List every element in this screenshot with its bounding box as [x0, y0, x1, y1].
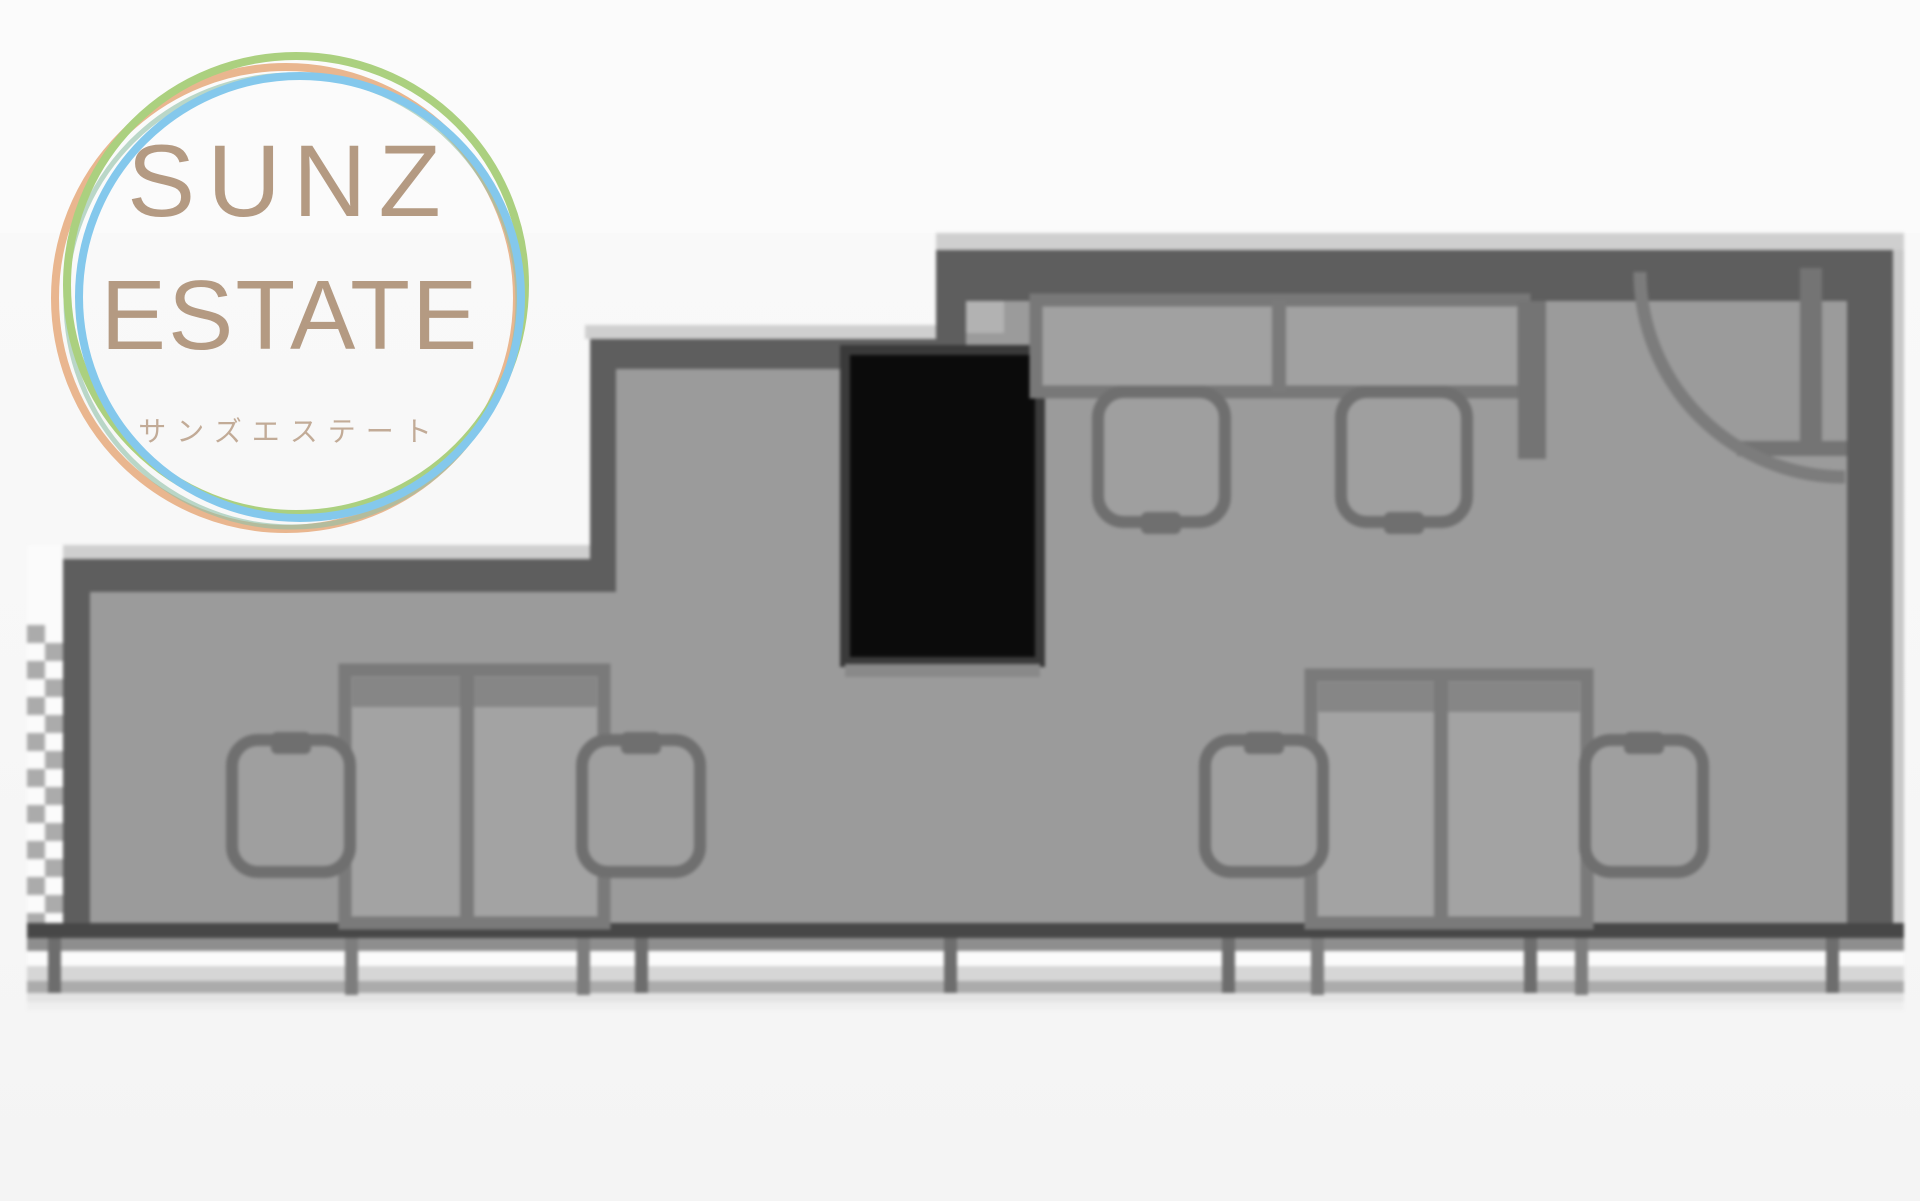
desk-top-band: [1318, 682, 1580, 712]
chair: [1098, 392, 1225, 522]
balcony-fade-2: [27, 1002, 1904, 1010]
balcony-light-band: [27, 966, 1904, 981]
chair-back: [1244, 732, 1284, 754]
brand-logo: SUNZ ESTATE サンズエステート: [20, 18, 560, 558]
logo-subtitle: サンズエステート: [20, 410, 560, 450]
wall-right-outer-edge: [1893, 250, 1904, 938]
table-divider: [1272, 300, 1286, 392]
balcony-rail-band: [27, 938, 1904, 951]
wall-left: [63, 592, 90, 923]
wall-right-section-top: [936, 250, 1893, 301]
left-window-hatch: [27, 625, 63, 937]
logo-title-line1: SUNZ: [20, 130, 560, 232]
chair-back: [1384, 512, 1424, 534]
chair: [1585, 740, 1703, 872]
desk-top-band: [352, 677, 597, 707]
logo-title-line2: ESTATE: [20, 266, 560, 364]
balcony-post: [944, 938, 957, 993]
balcony-white-band: [27, 951, 1904, 966]
desk-leg: [1311, 938, 1324, 995]
balcony-post: [1524, 938, 1537, 993]
desk-leg: [577, 938, 590, 995]
balcony-bottom-rail: [27, 981, 1904, 993]
balcony-fade-1: [27, 993, 1904, 1002]
chair-back: [621, 732, 661, 754]
wall-middle-top-edge: [585, 325, 966, 339]
black-block-shadow: [845, 664, 1040, 677]
real-estate-floorplan-page: SUNZ ESTATE サンズエステート: [0, 0, 1920, 1201]
balcony: [27, 938, 1904, 1010]
desk-pair: [345, 670, 604, 923]
chair: [582, 740, 700, 872]
wall-left-section-top: [63, 559, 616, 592]
wall-divider-jamb: [966, 301, 1004, 333]
door-leaf: [1800, 268, 1822, 454]
desk-leg: [345, 938, 358, 995]
wall-right-section-top-edge: [936, 233, 1904, 250]
balcony-post: [635, 938, 648, 993]
balcony-post: [1222, 938, 1235, 993]
chair-back: [1624, 732, 1664, 754]
wall-right: [1847, 301, 1893, 923]
black-block: [845, 350, 1040, 662]
chair-back: [1141, 512, 1181, 534]
chair: [232, 740, 350, 872]
chair: [1341, 392, 1467, 522]
chair-back: [271, 732, 311, 754]
desk-divider: [1434, 675, 1448, 923]
balcony-post: [1826, 938, 1839, 993]
wall-step: [590, 368, 616, 592]
wall-bottom: [27, 923, 1904, 938]
chair: [1205, 740, 1323, 872]
desk-leg: [1575, 938, 1588, 995]
balcony-post: [48, 938, 61, 993]
interior-wall-vertical: [1518, 301, 1546, 459]
desk-pair: [1311, 675, 1587, 923]
desk-divider: [460, 670, 474, 923]
